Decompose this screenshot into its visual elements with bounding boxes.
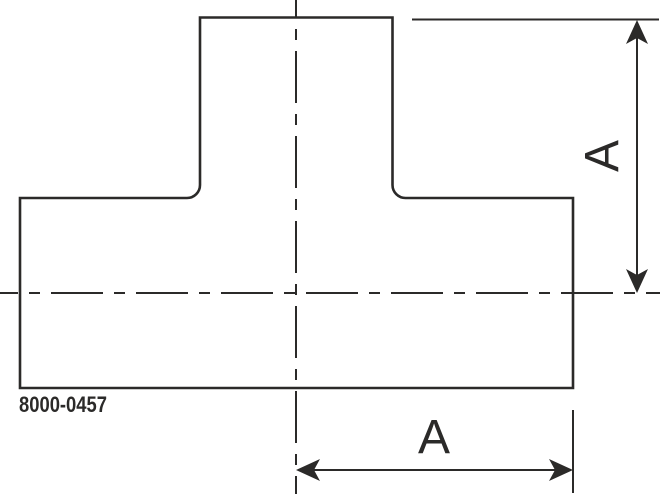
drawing-canvas: A A 8000-0457 <box>0 0 660 494</box>
vertical-dimension-label: A <box>576 140 629 172</box>
horizontal-dimension-group: A <box>296 410 573 493</box>
tee-fitting-technical-drawing: A A 8000-0457 <box>0 0 660 494</box>
vertical-dimension-group: A <box>412 20 659 294</box>
centerlines-group <box>0 0 660 494</box>
horizontal-dimension-label: A <box>418 411 450 464</box>
part-number-label: 8000-0457 <box>19 392 107 417</box>
